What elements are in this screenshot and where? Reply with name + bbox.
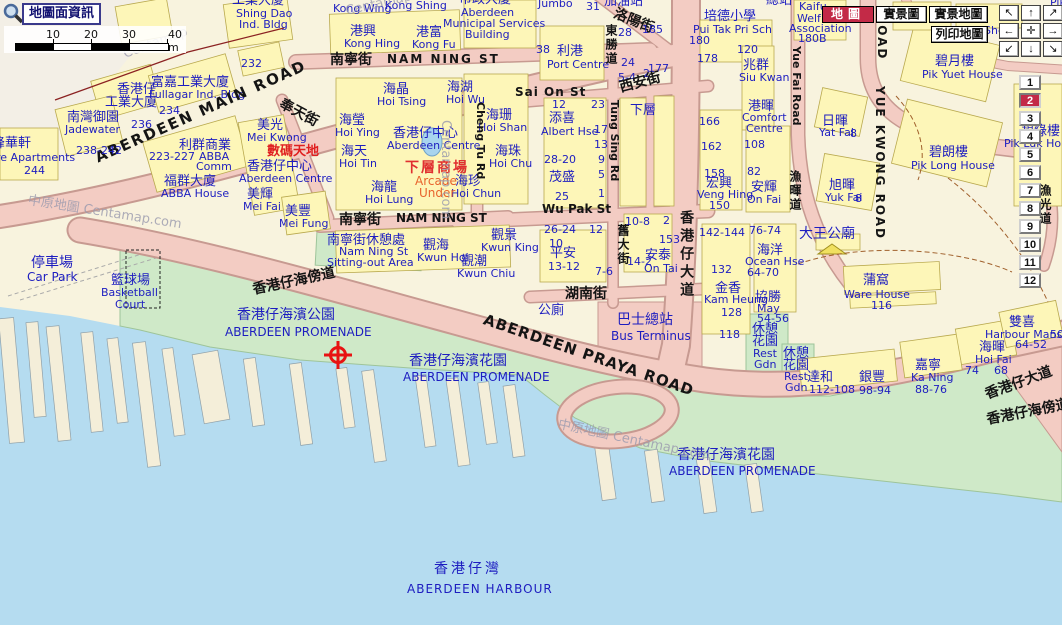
map-info-button[interactable]: 地圖面資訊 <box>22 3 101 25</box>
pan-down-left-button[interactable]: ↙ <box>999 41 1019 57</box>
pond <box>422 128 442 156</box>
scale-tickmark <box>129 39 130 43</box>
print-map-button[interactable]: 列印地圖 <box>931 26 988 43</box>
scale-tickmark <box>91 39 92 43</box>
page-11-button[interactable]: 11 <box>1019 255 1041 270</box>
map-tab-button[interactable]: 地圖 <box>822 6 874 23</box>
pan-up-right-button[interactable]: ↗ <box>1043 5 1062 21</box>
pan-recenter-button[interactable]: ✛ <box>1021 23 1041 39</box>
pan-control-pad: ↖↑↗←✛→↙↓↘ <box>999 5 1062 57</box>
map-viewport[interactable]: 工業大廈Shing DaoInd. Bldg232Kong WingKong S… <box>0 0 1062 625</box>
page-6-button[interactable]: 6 <box>1019 165 1041 180</box>
pan-left-button[interactable]: ← <box>999 23 1019 39</box>
page-12-button[interactable]: 12 <box>1019 273 1041 288</box>
scale-bar: 10203040 m <box>4 26 186 53</box>
pan-up-button[interactable]: ↑ <box>1021 5 1041 21</box>
page-selector: 123456789101112 <box>1019 75 1041 288</box>
page-5-button[interactable]: 5 <box>1019 147 1041 162</box>
scale-tickmark <box>53 39 54 43</box>
page-3-button[interactable]: 3 <box>1019 111 1041 126</box>
page-4-button[interactable]: 4 <box>1019 129 1041 144</box>
pan-right-button[interactable]: → <box>1043 23 1062 39</box>
page-10-button[interactable]: 10 <box>1019 237 1041 252</box>
scene-map-button[interactable]: 實景地圖 <box>929 6 988 23</box>
pan-up-left-button[interactable]: ↖ <box>999 5 1019 21</box>
map-canvas <box>0 0 1062 625</box>
page-2-button[interactable]: 2 <box>1019 93 1041 108</box>
pan-down-right-button[interactable]: ↘ <box>1043 41 1062 57</box>
page-9-button[interactable]: 9 <box>1019 219 1041 234</box>
scale-tick-label: 40 m <box>168 28 182 54</box>
page-7-button[interactable]: 7 <box>1019 183 1041 198</box>
street-view-button[interactable]: 實景圖 <box>876 6 927 23</box>
magnifier-icon <box>2 2 24 24</box>
page-1-button[interactable]: 1 <box>1019 75 1041 90</box>
page-8-button[interactable]: 8 <box>1019 201 1041 216</box>
scale-tickmark <box>167 39 168 43</box>
pan-down-button[interactable]: ↓ <box>1021 41 1041 57</box>
